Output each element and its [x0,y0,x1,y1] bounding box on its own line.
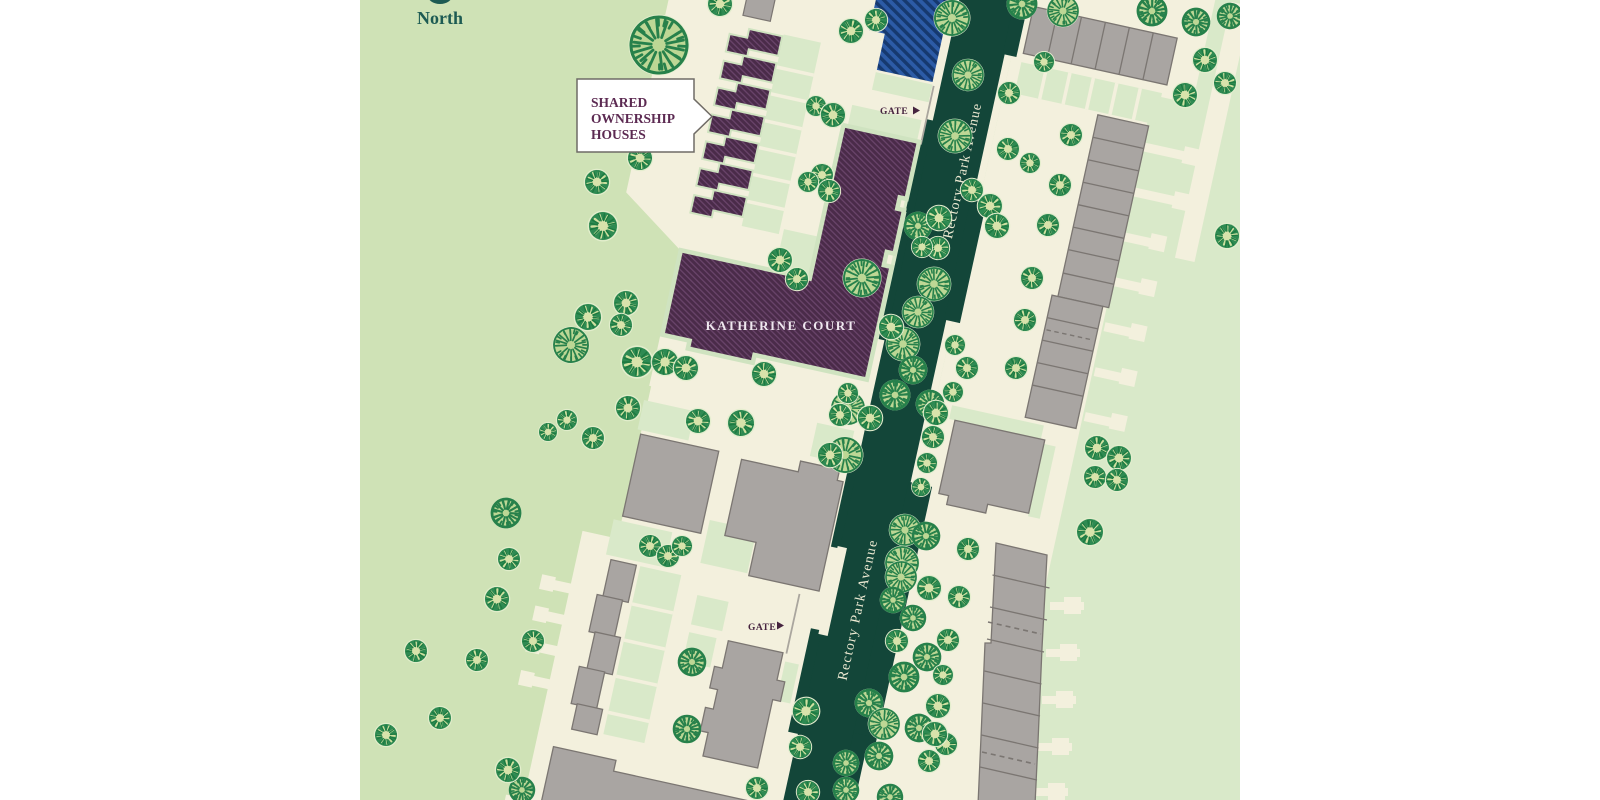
svg-text:KATHERINE COURT: KATHERINE COURT [706,318,857,333]
svg-text:GATE: GATE [748,623,776,633]
svg-text:HOUSES: HOUSES [591,127,646,142]
svg-text:OWNERSHIP: OWNERSHIP [591,111,675,126]
svg-text:GATE: GATE [880,107,908,117]
svg-text:North: North [417,8,463,28]
svg-text:SHARED: SHARED [591,95,648,110]
